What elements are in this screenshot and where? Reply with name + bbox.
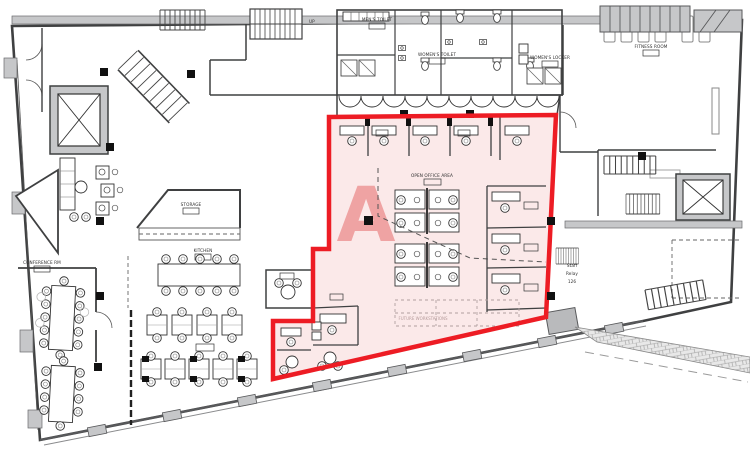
- toilet: [456, 10, 464, 22]
- sink: [446, 40, 453, 45]
- floor-plan-drawing: UP MEN'S TOILET WOMEN: [0, 0, 750, 461]
- staff-relay-label-3: 126: [568, 279, 577, 284]
- womens-toilet-tag: [429, 58, 445, 64]
- shower-stall: [341, 60, 357, 76]
- toilet: [421, 58, 429, 70]
- womens-locker-label: WOMEN'S LOCKER: [530, 55, 570, 60]
- storage-room: STORAGE: [137, 190, 240, 240]
- conference-room-label: CONFERENCE RM: [23, 260, 61, 265]
- womens-locker-tag: [542, 61, 558, 67]
- stair-northwest: [118, 10, 205, 123]
- fitness-room-tag: [643, 50, 659, 56]
- conference-table: [48, 365, 75, 422]
- workstation-rows-left: [141, 308, 257, 387]
- future-room-dashed: [672, 240, 740, 298]
- storage-label: STORAGE: [181, 202, 202, 207]
- toilet: [493, 10, 501, 22]
- huddle-rooms: [266, 270, 312, 308]
- up-label: UP: [309, 19, 315, 24]
- mens-toilet-label: MEN'S TOILET: [362, 17, 393, 22]
- fitness-room-label: FITNESS ROOM: [635, 44, 668, 49]
- conference-table: [48, 285, 75, 350]
- elevator-east: [676, 174, 730, 220]
- open-office-label: OPEN OFFICE AREA: [411, 173, 453, 178]
- bench: [712, 88, 719, 134]
- kitchen: KITCHEN: [158, 248, 240, 295]
- sink: [399, 56, 406, 61]
- demising-lines: [128, 256, 131, 425]
- sink: [399, 46, 406, 51]
- kitchen-label: KITCHEN: [194, 248, 213, 253]
- toilet: [421, 12, 429, 24]
- toilet: [493, 58, 501, 70]
- womens-locker-room: WOMEN'S LOCKER: [519, 25, 570, 95]
- conference-room-tag: [34, 266, 50, 272]
- partition-arc-row: [339, 96, 559, 107]
- staff-relay-label-1: Staff: [567, 263, 578, 268]
- row-tag: [196, 344, 214, 351]
- floor-plan: UP MEN'S TOILET WOMEN: [0, 0, 750, 461]
- shower-stall: [359, 60, 375, 76]
- zone-a-letter: A: [337, 170, 396, 259]
- kitchen-table: [158, 264, 240, 286]
- terrace-vestibule: [545, 308, 578, 335]
- womens-toilet-label: WOMEN'S TOILET: [418, 52, 456, 57]
- stair-band-northeast: [600, 6, 742, 32]
- reception-lounge: [16, 158, 123, 253]
- stair-southeast: [645, 280, 706, 310]
- staff-relay-label-2: Relay: [566, 271, 578, 276]
- future-workstations-label: FUTURE WORKSTATIONS: [398, 316, 448, 321]
- sink: [480, 40, 487, 45]
- elevator-northwest: [50, 86, 108, 154]
- storage-tag: [183, 208, 199, 214]
- entry-doors-west: [26, 28, 42, 112]
